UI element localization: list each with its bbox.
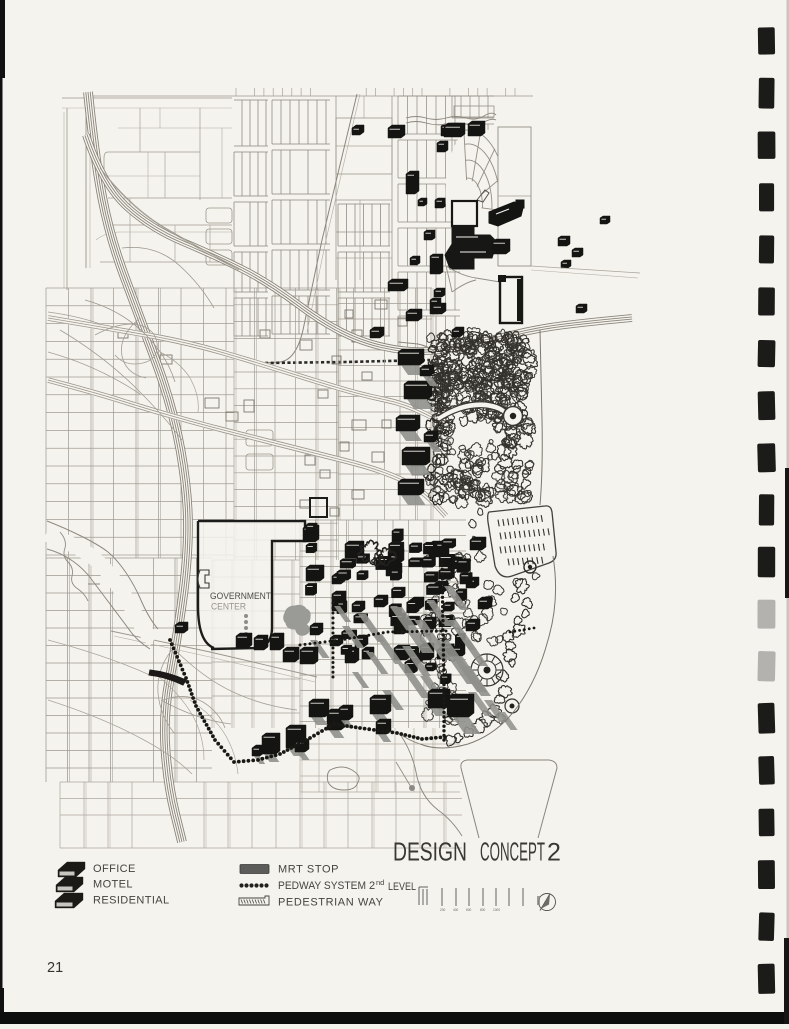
- svg-text:RESIDENTIAL: RESIDENTIAL: [93, 895, 170, 907]
- svg-text:LEVEL: LEVEL: [388, 881, 416, 893]
- svg-text:CENTER: CENTER: [211, 602, 246, 612]
- svg-text:2: 2: [547, 839, 561, 867]
- svg-text:GOVERNMENT: GOVERNMENT: [210, 591, 271, 601]
- svg-text:nd: nd: [376, 878, 384, 887]
- svg-text:800: 800: [480, 908, 486, 912]
- svg-text:OFFICE: OFFICE: [93, 863, 136, 875]
- svg-text:400: 400: [453, 908, 459, 912]
- svg-text:DESIGN: DESIGN: [393, 837, 467, 867]
- svg-text:PEDWAY SYSTEM: PEDWAY SYSTEM: [278, 880, 366, 892]
- svg-text:1000: 1000: [493, 908, 500, 912]
- svg-text:CONCEPT: CONCEPT: [480, 837, 545, 867]
- svg-text:21: 21: [47, 960, 63, 976]
- svg-text:MRT STOP: MRT STOP: [278, 864, 339, 876]
- svg-text:PEDESTRIAN WAY: PEDESTRIAN WAY: [278, 897, 384, 909]
- svg-text:600: 600: [466, 908, 472, 912]
- svg-text:MOTEL: MOTEL: [93, 879, 133, 891]
- svg-text:200: 200: [440, 908, 446, 912]
- svg-text:2: 2: [369, 880, 375, 892]
